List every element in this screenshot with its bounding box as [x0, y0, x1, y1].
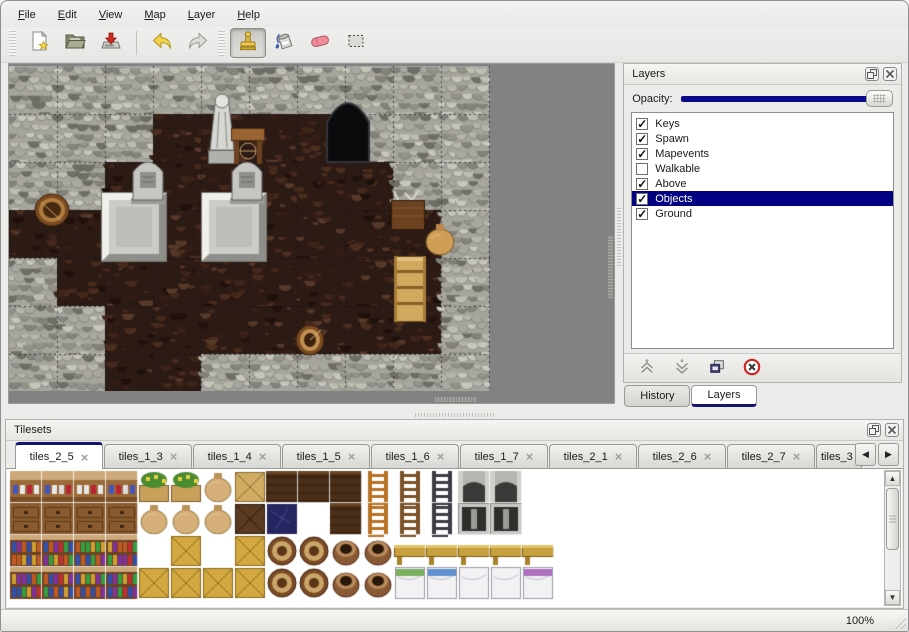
- tileset-tab-tiles_1_3[interactable]: tiles_1_3×: [104, 444, 192, 468]
- layer-buttons-row: [624, 353, 901, 382]
- undo-button[interactable]: [144, 28, 180, 58]
- tileset-tab-tiles_1_5[interactable]: tiles_1_5×: [282, 444, 370, 468]
- central-area: Layers Opacity: ✓Keys✓Spawn✓Mapevents: [1, 63, 908, 411]
- close-tab-icon[interactable]: ×: [348, 450, 356, 463]
- layer-name: Objects: [655, 193, 692, 205]
- tileset-tabbar: tiles_2_5×tiles_1_3×tiles_1_4×tiles_1_5×…: [6, 441, 903, 469]
- duplicate-layer-icon: [708, 358, 726, 379]
- layers-dock: Layers Opacity: ✓Keys✓Spawn✓Mapevents: [623, 63, 902, 411]
- menu-view[interactable]: View: [88, 6, 134, 24]
- tileset-tab-label: tiles_1_3: [119, 451, 163, 463]
- tileset-vertical-scrollbar[interactable]: ▲ ▼: [884, 470, 901, 606]
- app-window: FileEditViewMapLayerHelp Layers: [0, 0, 909, 632]
- scroll-right-icon[interactable]: ▶: [878, 443, 899, 466]
- layer-row-above[interactable]: ✓Above: [632, 176, 893, 191]
- new-file-icon: [27, 29, 51, 56]
- map-canvas[interactable]: [9, 66, 490, 391]
- save-file-button[interactable]: [93, 28, 129, 58]
- layer-row-spawn[interactable]: ✓Spawn: [632, 131, 893, 146]
- map-viewport: [8, 63, 615, 404]
- layer-name: Mapevents: [655, 148, 709, 160]
- tilesets-panel-title: Tilesets: [14, 424, 863, 436]
- tab-scroll-buttons: ◀ ▶: [855, 443, 899, 466]
- close-panel-button[interactable]: [883, 67, 897, 81]
- tileset-tab-label: tiles_1_6: [386, 451, 430, 463]
- opacity-label: Opacity:: [632, 93, 672, 105]
- layer-visibility-checkbox[interactable]: ✓: [636, 178, 648, 190]
- close-tilesets-button[interactable]: [885, 423, 899, 437]
- close-tab-icon[interactable]: ×: [259, 450, 267, 463]
- close-tab-icon[interactable]: ×: [615, 450, 623, 463]
- tileset-tab-label: tiles_3: [821, 451, 853, 463]
- tileset-tab-label: tiles_2_1: [564, 451, 608, 463]
- layer-visibility-checkbox[interactable]: ✓: [636, 148, 648, 160]
- tileset-tab-label: tiles_1_7: [475, 451, 519, 463]
- tab-history[interactable]: History: [624, 385, 690, 407]
- tileset-scrollbar-thumb[interactable]: [886, 488, 899, 550]
- zoom-level: 100%: [846, 615, 874, 627]
- open-folder-icon: [63, 29, 87, 56]
- redo-button[interactable]: [180, 28, 216, 58]
- horizontal-splitter[interactable]: [1, 411, 908, 419]
- tilesets-titlebar: Tilesets: [6, 420, 903, 441]
- opacity-row: Opacity:: [624, 85, 901, 111]
- new-file-button[interactable]: [21, 28, 57, 58]
- toolbar: [1, 27, 908, 63]
- scroll-down-icon[interactable]: ▼: [885, 590, 900, 605]
- layers-panel-title: Layers: [632, 68, 861, 80]
- toolbar-handle[interactable]: [9, 30, 16, 56]
- save-icon: [99, 29, 123, 56]
- close-tab-icon[interactable]: ×: [437, 450, 445, 463]
- tileset-tab-tiles_2_6[interactable]: tiles_2_6×: [638, 444, 726, 468]
- layer-visibility-checkbox[interactable]: ✓: [636, 118, 648, 130]
- layer-name: Above: [655, 178, 686, 190]
- duplicate-layer-button[interactable]: [706, 357, 728, 379]
- tileset-tab-label: tiles_1_4: [208, 451, 252, 463]
- move-layer-down-button[interactable]: [671, 357, 693, 379]
- menu-bar: FileEditViewMapLayerHelp: [1, 1, 908, 27]
- layer-row-ground[interactable]: ✓Ground: [632, 206, 893, 221]
- map-horizontal-scrollbar[interactable]: [435, 397, 477, 402]
- scroll-up-icon[interactable]: ▲: [885, 471, 900, 486]
- open-file-button[interactable]: [57, 28, 93, 58]
- delete-layer-icon: [743, 358, 761, 379]
- opacity-slider-groove: [681, 96, 889, 102]
- redo-icon: [186, 29, 210, 56]
- layer-name: Ground: [655, 208, 692, 220]
- resize-grip[interactable]: [890, 613, 906, 629]
- tileset-tab-tiles_1_6[interactable]: tiles_1_6×: [371, 444, 459, 468]
- layer-name: Keys: [655, 118, 679, 130]
- layer-row-objects[interactable]: ✓Objects: [632, 191, 893, 206]
- tileset-canvas[interactable]: [9, 470, 865, 604]
- layers-titlebar: Layers: [624, 64, 901, 85]
- float-tilesets-button[interactable]: [867, 423, 881, 437]
- tileset-tab-tiles_1_7[interactable]: tiles_1_7×: [460, 444, 548, 468]
- layer-name: Walkable: [655, 163, 700, 175]
- fill-tool-icon: [272, 29, 296, 56]
- move-layer-up-icon: [638, 358, 656, 379]
- layer-visibility-checkbox[interactable]: ✓: [636, 208, 648, 220]
- layer-row-mapevents[interactable]: ✓Mapevents: [632, 146, 893, 161]
- tileset-scrollbar-track[interactable]: [885, 486, 900, 590]
- tileset-tab-label: tiles_1_5: [297, 451, 341, 463]
- layer-visibility-checkbox[interactable]: ✓: [636, 193, 648, 205]
- float-panel-button[interactable]: [865, 67, 879, 81]
- opacity-slider-handle[interactable]: [866, 90, 893, 107]
- close-tab-icon[interactable]: ×: [793, 450, 801, 463]
- menu-map[interactable]: Map: [133, 6, 176, 24]
- fill-tool-button[interactable]: [266, 28, 302, 58]
- toolbar-handle[interactable]: [218, 30, 225, 56]
- selection-tool-button[interactable]: [338, 28, 374, 58]
- close-tab-icon[interactable]: ×: [81, 451, 89, 464]
- tileset-tab-tiles_2_1[interactable]: tiles_2_1×: [549, 444, 637, 468]
- scroll-left-icon[interactable]: ◀: [855, 443, 876, 466]
- eraser-tool-icon: [308, 29, 332, 56]
- tilesets-dock: Tilesets tiles_2_5×tiles_1_3×tiles_1_4×t…: [5, 419, 904, 609]
- close-tab-icon[interactable]: ×: [526, 450, 534, 463]
- dock-tabs: HistoryLayers: [623, 383, 902, 409]
- tileset-tab-label: tiles_2_5: [30, 451, 74, 463]
- undo-icon: [150, 29, 174, 56]
- stamp-tool-button[interactable]: [230, 28, 266, 58]
- vertical-splitter[interactable]: [615, 63, 623, 411]
- menu-layer[interactable]: Layer: [177, 6, 227, 24]
- selection-tool-icon: [344, 29, 368, 56]
- status-bar: 100%: [1, 609, 908, 631]
- move-layer-up-button[interactable]: [636, 357, 658, 379]
- menu-file[interactable]: File: [7, 6, 47, 24]
- opacity-slider[interactable]: [681, 90, 893, 107]
- map-vertical-scrollbar[interactable]: [608, 236, 613, 298]
- layer-visibility-checkbox[interactable]: [636, 163, 648, 175]
- menu-help[interactable]: Help: [226, 6, 271, 24]
- close-tab-icon[interactable]: ×: [170, 450, 178, 463]
- layer-name: Spawn: [655, 133, 689, 145]
- toolbar-separator: [136, 31, 137, 55]
- tileset-view: ▲ ▼: [7, 469, 902, 607]
- tileset-tab-tiles_2_5[interactable]: tiles_2_5×: [15, 442, 103, 469]
- layer-row-keys[interactable]: ✓Keys: [632, 116, 893, 131]
- tileset-tab-label: tiles_2_6: [653, 451, 697, 463]
- tab-layers[interactable]: Layers: [691, 385, 756, 407]
- tileset-tab-label: tiles_2_7: [742, 451, 786, 463]
- layer-list: ✓Keys✓Spawn✓MapeventsWalkable✓Above✓Obje…: [631, 112, 894, 349]
- eraser-tool-button[interactable]: [302, 28, 338, 58]
- stamp-tool-icon: [236, 29, 260, 56]
- tileset-tab-tiles_1_4[interactable]: tiles_1_4×: [193, 444, 281, 468]
- move-layer-down-icon: [673, 358, 691, 379]
- menu-edit[interactable]: Edit: [47, 6, 88, 24]
- layer-row-walkable[interactable]: Walkable: [632, 161, 893, 176]
- delete-layer-button[interactable]: [741, 357, 763, 379]
- close-tab-icon[interactable]: ×: [704, 450, 712, 463]
- layers-panel: Layers Opacity: ✓Keys✓Spawn✓Mapevents: [623, 63, 902, 383]
- tileset-tab-tiles_2_7[interactable]: tiles_2_7×: [727, 444, 815, 468]
- layer-visibility-checkbox[interactable]: ✓: [636, 133, 648, 145]
